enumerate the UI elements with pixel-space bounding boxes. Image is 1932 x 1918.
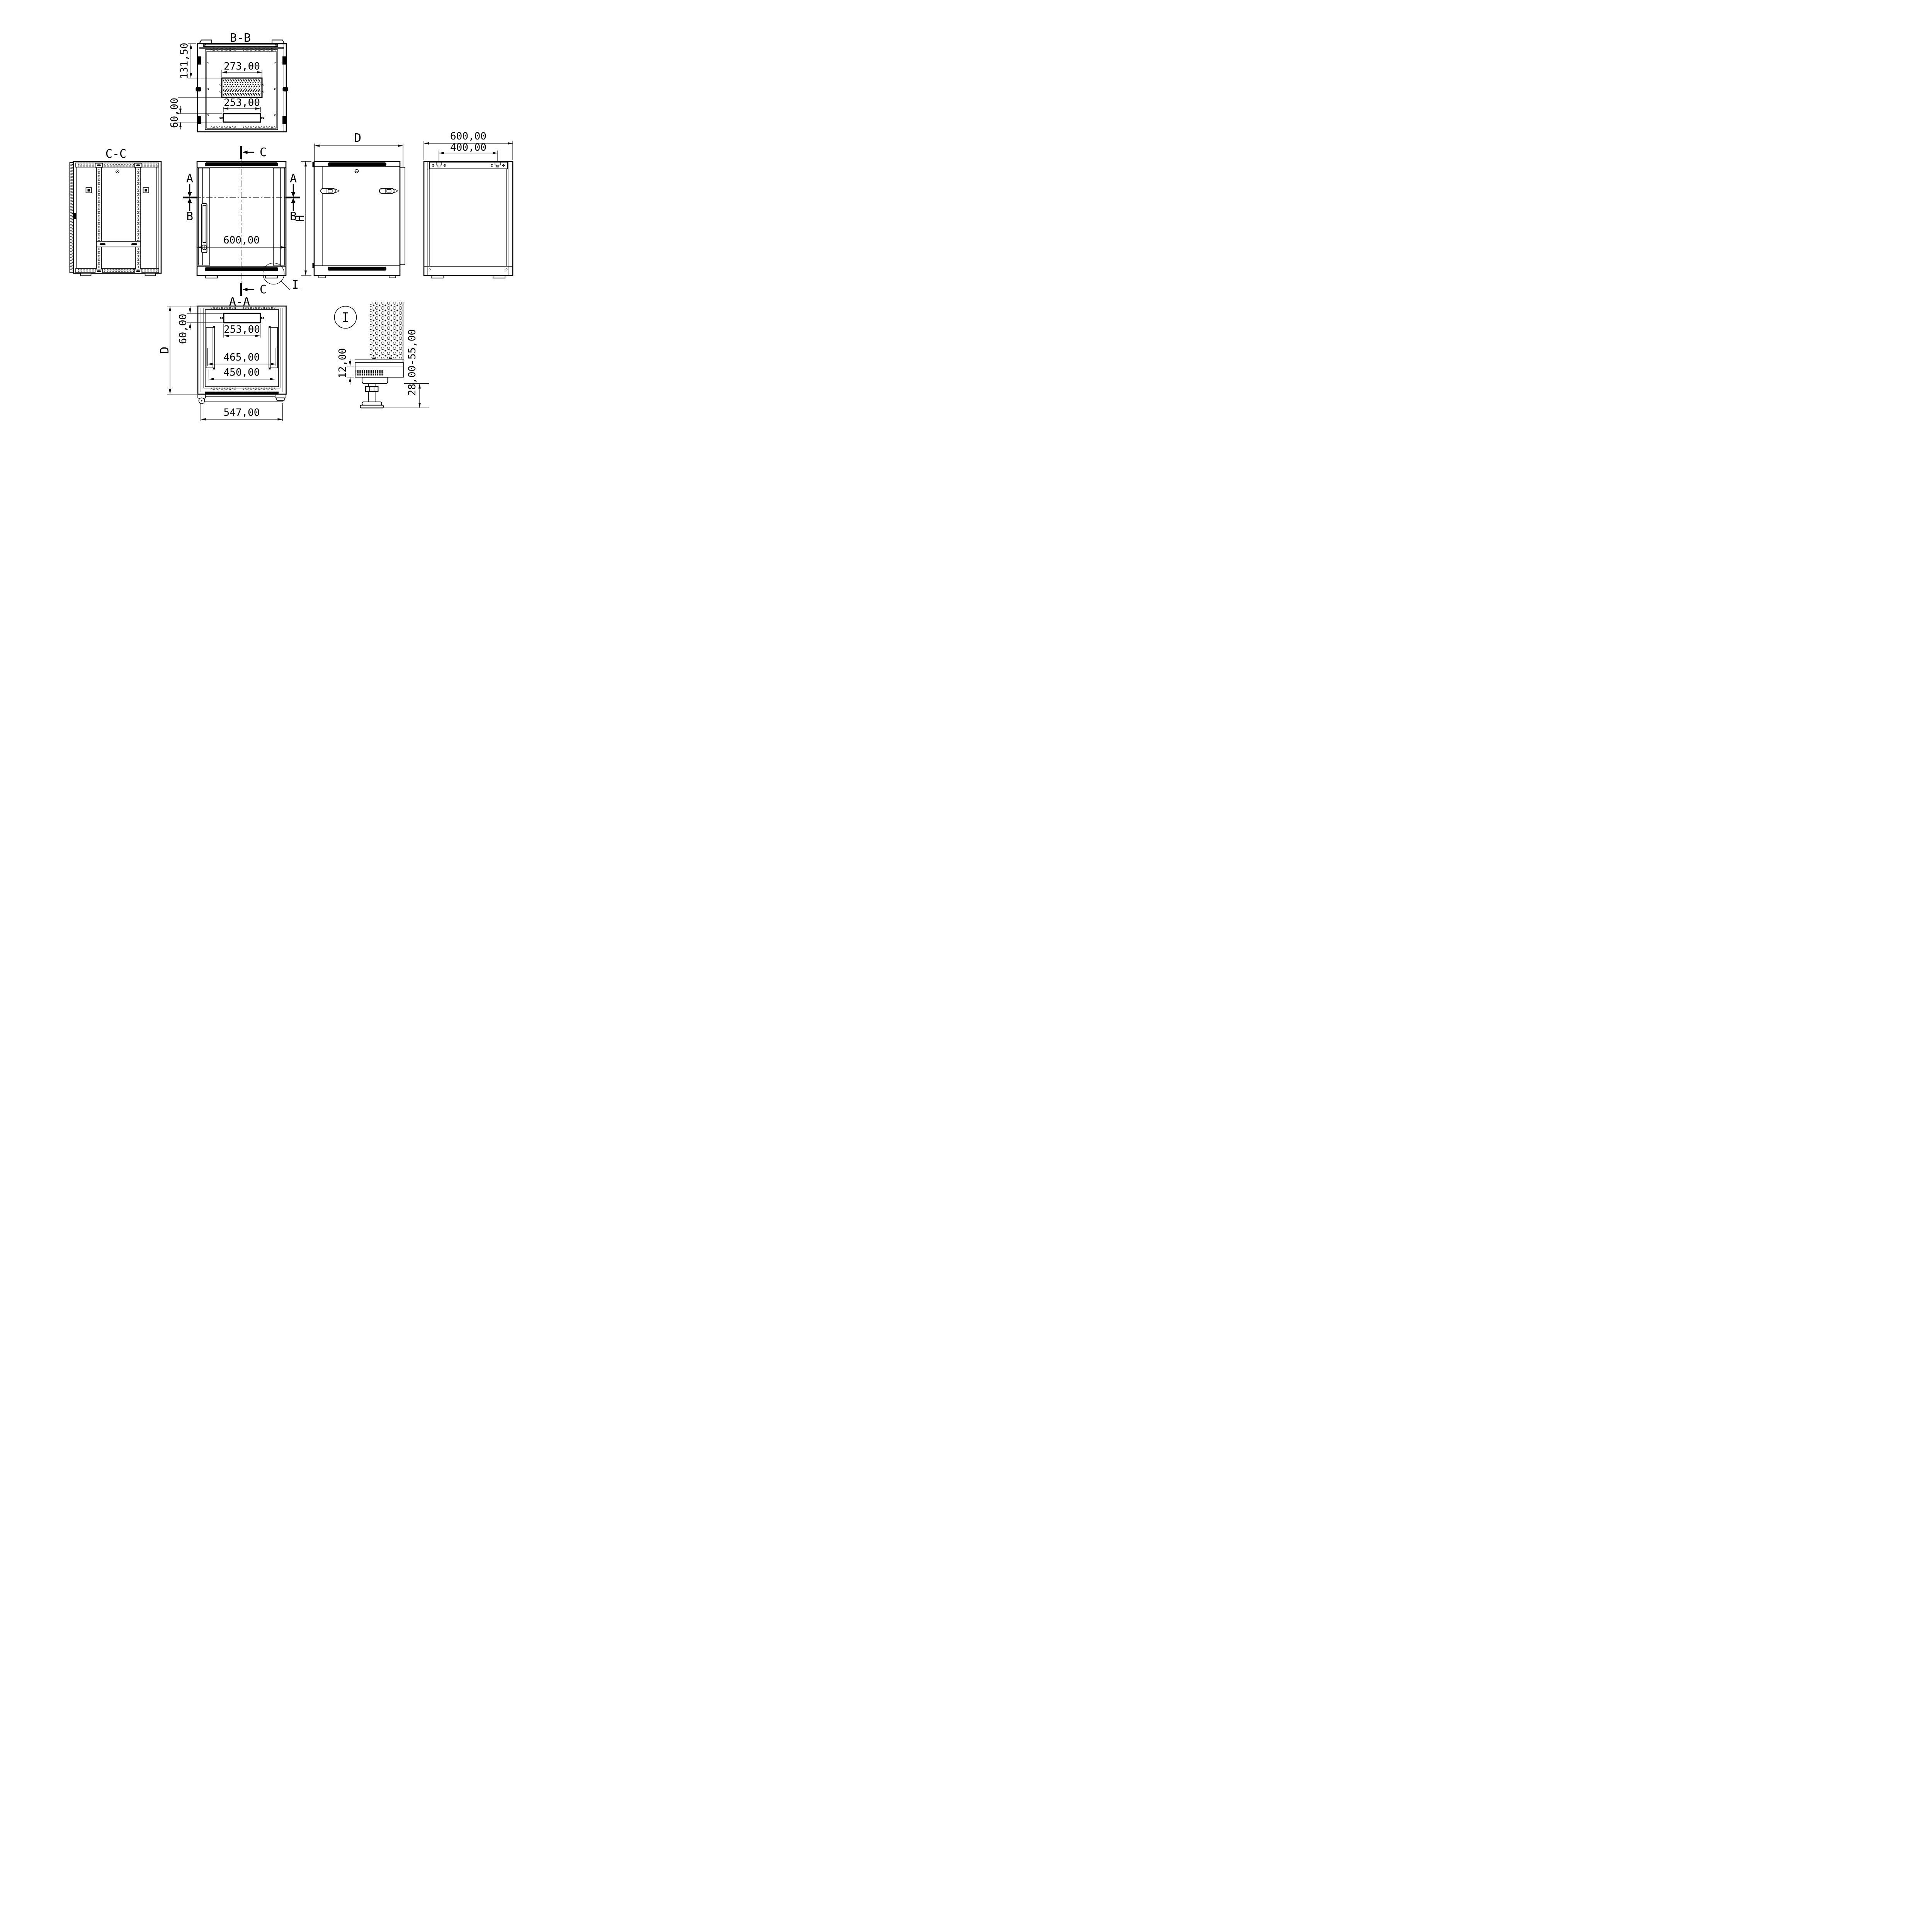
bracket-slot [100, 243, 106, 245]
technical-drawing: B-B [0, 0, 606, 429]
rail-nub [269, 368, 271, 369]
rail-nub [213, 368, 215, 369]
dim-base-depth: 547,00 [224, 407, 260, 419]
cable-entry-panel [224, 313, 260, 323]
screw-center [433, 165, 434, 166]
screw [261, 117, 262, 118]
screw-hole-row [243, 388, 276, 390]
dim-rail-inner: 450,00 [224, 367, 260, 378]
section-cc-title: C-C [105, 147, 126, 161]
screw [220, 317, 221, 318]
dim-rear-width: 600,00 [450, 131, 486, 142]
side-latch-knob [196, 87, 201, 92]
latch-pin [145, 189, 148, 192]
section-c-label: C [260, 283, 267, 296]
screw-hole-row [210, 49, 236, 51]
screw [261, 317, 262, 318]
dim-depth-ref: D [158, 347, 172, 354]
dim-cable-height: 60,00 [169, 98, 180, 128]
cabinet-outline-cc [73, 162, 161, 273]
cabinet-outline-rear [424, 162, 513, 276]
foot [275, 395, 286, 398]
section-b-label: B [186, 210, 193, 223]
foot-base [361, 405, 384, 408]
bottom-gasket-strip [205, 392, 279, 395]
vent-louver-row [223, 88, 260, 92]
wall-mount-rail [429, 162, 507, 169]
cabinet-outline-top-section [197, 44, 286, 132]
bracket-slot [131, 243, 137, 245]
bottom-vent-slot [328, 267, 386, 271]
slot-center [497, 165, 498, 167]
foot [493, 276, 505, 278]
foot-disc [362, 402, 382, 405]
screw [222, 317, 223, 318]
side-latch-handle [321, 189, 339, 194]
front-door-edge-perforated [400, 168, 405, 265]
screw [263, 84, 264, 85]
threaded-rod [369, 391, 376, 402]
latch-tip [394, 189, 398, 193]
bottom-vent-slot [205, 267, 278, 271]
screw [263, 317, 264, 318]
screw [220, 84, 221, 85]
dim-height-ref: H [294, 215, 307, 222]
wheel-hub [201, 400, 202, 401]
door-lock-latch [73, 213, 76, 219]
foot [319, 276, 325, 278]
hinge-block [198, 116, 201, 124]
arrowhead [243, 151, 248, 154]
dim-width: 600,00 [223, 235, 260, 246]
cabinet-outline-front [197, 162, 286, 276]
dim-lip: 12,00 [337, 348, 349, 378]
hinge-lug [313, 162, 315, 167]
rail-slot [97, 271, 101, 272]
screw [219, 117, 221, 118]
drawing-sheet: B-B [0, 0, 606, 429]
detail-ref-label: I [292, 278, 299, 292]
screw-hole-row [210, 388, 236, 390]
screw [263, 117, 264, 118]
hinge-block [282, 116, 286, 124]
vent-louver-row [223, 93, 260, 96]
screw [263, 91, 264, 92]
side-latch-handle [379, 189, 398, 194]
dim-cable-width: 253,00 [224, 324, 260, 335]
screw [207, 114, 209, 115]
screw-center [492, 165, 492, 166]
corner-lug [199, 40, 212, 44]
corner-lug [272, 40, 284, 44]
hinge-block [282, 56, 286, 65]
foot [389, 276, 396, 278]
screw [221, 117, 223, 118]
base-vent-slots [356, 370, 384, 376]
view-rear: 600,00 400,00 [424, 131, 513, 278]
screw [506, 269, 507, 270]
door-gasket-strip [199, 48, 284, 49]
view-detail-i: I 12,00 28,00-55,00 [335, 302, 429, 408]
vent-louver-row [223, 84, 260, 87]
bar-end [275, 45, 277, 46]
section-bb-title: B-B [230, 31, 251, 45]
dim-rail-outer: 465,00 [224, 352, 260, 363]
side-latch-knob [283, 87, 288, 92]
screw-center [503, 165, 504, 166]
adjuster-nut [366, 386, 378, 391]
hinge-lug [313, 263, 315, 268]
foot-mount-plate [362, 377, 388, 384]
screw [207, 62, 209, 63]
view-section-cc: C-C [70, 147, 162, 276]
top-vent-slot [205, 162, 278, 166]
cable-entry-panel [223, 114, 260, 122]
screw [274, 62, 275, 63]
door-perforation-band [281, 168, 285, 265]
view-side: D [313, 131, 405, 278]
hinge-block [198, 56, 201, 65]
top-rail-holes [78, 164, 158, 167]
foot-pad [277, 398, 284, 401]
dim-depth-ref: D [354, 131, 361, 145]
screw [220, 91, 221, 92]
flange-tab [372, 358, 376, 359]
bottom-rail-holes [78, 269, 158, 272]
rail-slot [136, 271, 140, 272]
screw-hole-row [210, 307, 236, 310]
door-edge-perforation [70, 164, 73, 271]
detail-title: I [342, 310, 349, 325]
section-c-label: C [260, 146, 267, 159]
arrowhead [188, 192, 192, 197]
section-a-label: A [186, 172, 193, 186]
screw-hole-row [243, 307, 276, 310]
foot [431, 276, 443, 278]
rack-rail-section [269, 327, 277, 368]
dim-foot-range: 28,00-55,00 [406, 329, 418, 396]
section-a-label: A [290, 172, 297, 186]
screw-hole-row [243, 49, 276, 51]
door-perforation-band [274, 168, 281, 265]
view-front: C C A A B B 600,00 I H [183, 146, 311, 296]
rack-rail-holes [98, 169, 100, 269]
vent-louver-row [223, 80, 260, 83]
dim-cable-width: 253,00 [224, 97, 260, 109]
screw-hole-row [210, 126, 236, 129]
screw-hole-row [243, 126, 276, 129]
top-vent-slot [328, 162, 386, 166]
section-aa-title: A-A [229, 295, 250, 309]
rack-rail-holes [137, 169, 139, 269]
rail-slot [97, 165, 101, 167]
screw-center [117, 171, 118, 172]
dim-vent-width: 273,00 [224, 61, 260, 72]
dim-mount-spacing: 400,00 [450, 142, 486, 153]
bar-end [204, 45, 206, 46]
slot-center [439, 165, 440, 167]
foot [265, 276, 277, 278]
foot [206, 276, 218, 278]
arrowhead [243, 288, 248, 291]
screw [274, 114, 275, 115]
rail-nub [213, 326, 215, 327]
foot [81, 273, 91, 276]
arrowhead [291, 192, 296, 197]
latch-pin [88, 189, 90, 192]
rail-slot [136, 165, 140, 167]
door-edge-section-bar [202, 397, 284, 402]
screw [429, 269, 430, 270]
latch-tip [335, 189, 339, 193]
perforated-side-panel [370, 302, 403, 359]
screw [274, 88, 275, 89]
dim-cable-height: 60,00 [177, 314, 189, 344]
rail-nub [269, 326, 271, 327]
view-section-aa: A-A 60 [158, 295, 286, 421]
view-section-bb: B-B [169, 31, 288, 132]
foot [145, 273, 156, 276]
screw-center [444, 165, 445, 166]
screw [207, 88, 209, 89]
flange-tab [389, 358, 392, 359]
cabinet-outline-side [314, 162, 400, 276]
dim-vent-offset: 131,50 [179, 43, 190, 79]
